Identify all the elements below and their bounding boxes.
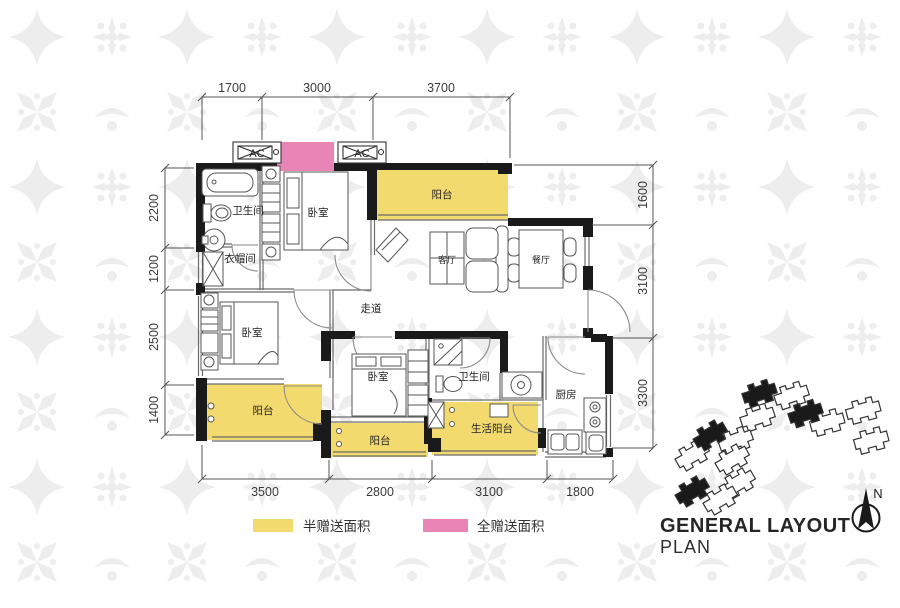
room-label-life-balcony: 生活阳台 <box>471 422 513 435</box>
vent-dot <box>337 442 342 447</box>
room-label-kitchen: 厨房 <box>556 388 577 401</box>
dim-bottom-3: 3100 <box>475 485 503 499</box>
dim-right-1: 1600 <box>636 181 650 209</box>
vent-dot <box>337 429 342 434</box>
dim-bottom-4: 1800 <box>566 485 594 499</box>
washer-icon <box>490 404 508 417</box>
vent-dot <box>208 403 214 409</box>
vent-dot <box>450 408 455 413</box>
wardrobe-icon <box>203 252 223 286</box>
bathtub-icon <box>202 169 258 196</box>
vent-dot <box>450 422 455 427</box>
room-label-bathroom-1: 卫生间 <box>232 204 264 217</box>
north-label: N <box>873 486 882 501</box>
duct-icon <box>428 402 444 428</box>
room-label-balcony-mid: 阳台 <box>370 434 391 447</box>
washbasin-icon <box>502 372 542 398</box>
stove-icon <box>584 398 606 432</box>
toilet-icon <box>203 204 231 222</box>
ac-label: AC <box>249 148 264 160</box>
bed-icon <box>352 350 428 416</box>
dim-top-2: 3000 <box>303 81 331 95</box>
dim-left-2: 1200 <box>147 255 161 283</box>
dim-left-1: 2200 <box>147 194 161 222</box>
page-subtitle: PLAN <box>660 537 711 557</box>
room-label-bedroom-2: 卧室 <box>242 326 263 339</box>
room-label-living: 客厅 <box>438 254 456 265</box>
dim-top-3: 3700 <box>427 81 455 95</box>
dim-bottom-1: 3500 <box>251 485 279 499</box>
room-label-cloakroom: 衣帽间 <box>224 252 256 265</box>
room-label-bedroom-1: 卧室 <box>308 206 329 219</box>
page-title: GENERAL LAYOUT <box>660 515 850 537</box>
shower-icon <box>434 339 462 365</box>
legend-swatch-half-gift <box>253 519 293 532</box>
vent-dot <box>208 416 214 422</box>
bed-icon <box>201 293 278 370</box>
room-label-dining: 餐厅 <box>532 254 550 265</box>
legend-swatch-full-gift <box>423 519 468 532</box>
room-label-balcony-top: 阳台 <box>432 188 453 201</box>
full-gift-strip-top <box>277 142 334 171</box>
dim-left-4: 1400 <box>147 396 161 424</box>
kitchen-sink-icon <box>548 430 582 454</box>
dim-right-2: 3100 <box>636 267 650 295</box>
sofa-icon <box>466 226 508 292</box>
room-label-balcony-left: 阳台 <box>253 404 274 417</box>
floor-plan-canvas: 1700 3000 3700 2200 1200 2500 1400 1600 … <box>0 0 900 608</box>
floor-plan-page: 1700 3000 3700 2200 1200 2500 1400 1600 … <box>0 0 900 608</box>
room-label-bedroom-3: 卧室 <box>368 370 389 383</box>
counter-icon <box>586 432 606 454</box>
legend-label-full-gift: 全赠送面积 <box>477 518 545 534</box>
dim-bottom-2: 2800 <box>366 485 394 499</box>
ac-label: AC <box>354 148 369 160</box>
room-label-bathroom-2: 卫生间 <box>458 370 490 383</box>
room-label-corridor: 走道 <box>361 302 382 315</box>
legend-label-half-gift: 半赠送面积 <box>303 519 371 534</box>
dim-top-1: 1700 <box>218 81 246 95</box>
dim-left-3: 2500 <box>147 323 161 351</box>
dim-right-3: 3300 <box>636 379 650 407</box>
